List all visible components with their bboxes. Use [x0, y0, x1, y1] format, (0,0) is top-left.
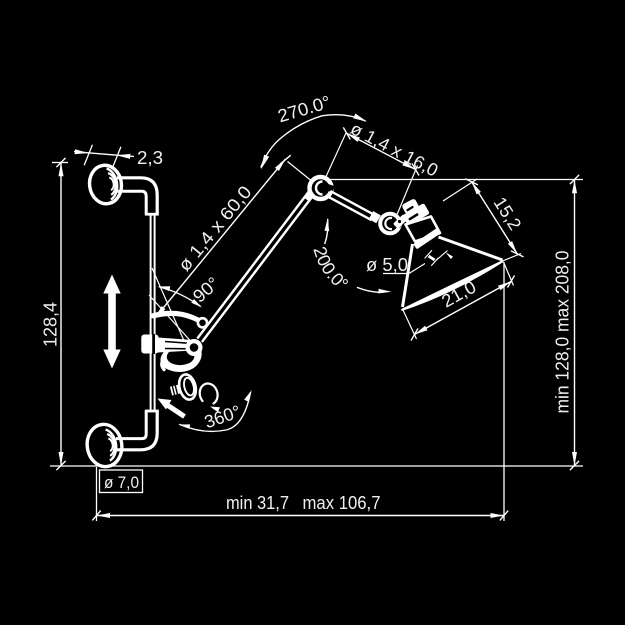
- svg-text:2,3: 2,3: [137, 148, 163, 168]
- svg-text:ø 7,0: ø 7,0: [104, 473, 139, 492]
- svg-text:max 106,7: max 106,7: [303, 493, 381, 513]
- svg-text:ø 5,0: ø 5,0: [366, 255, 408, 275]
- svg-text:min 31,7: min 31,7: [226, 493, 289, 513]
- svg-text:min 128,0 max 208,0: min 128,0 max 208,0: [553, 251, 573, 414]
- svg-text:128,4: 128,4: [41, 302, 61, 347]
